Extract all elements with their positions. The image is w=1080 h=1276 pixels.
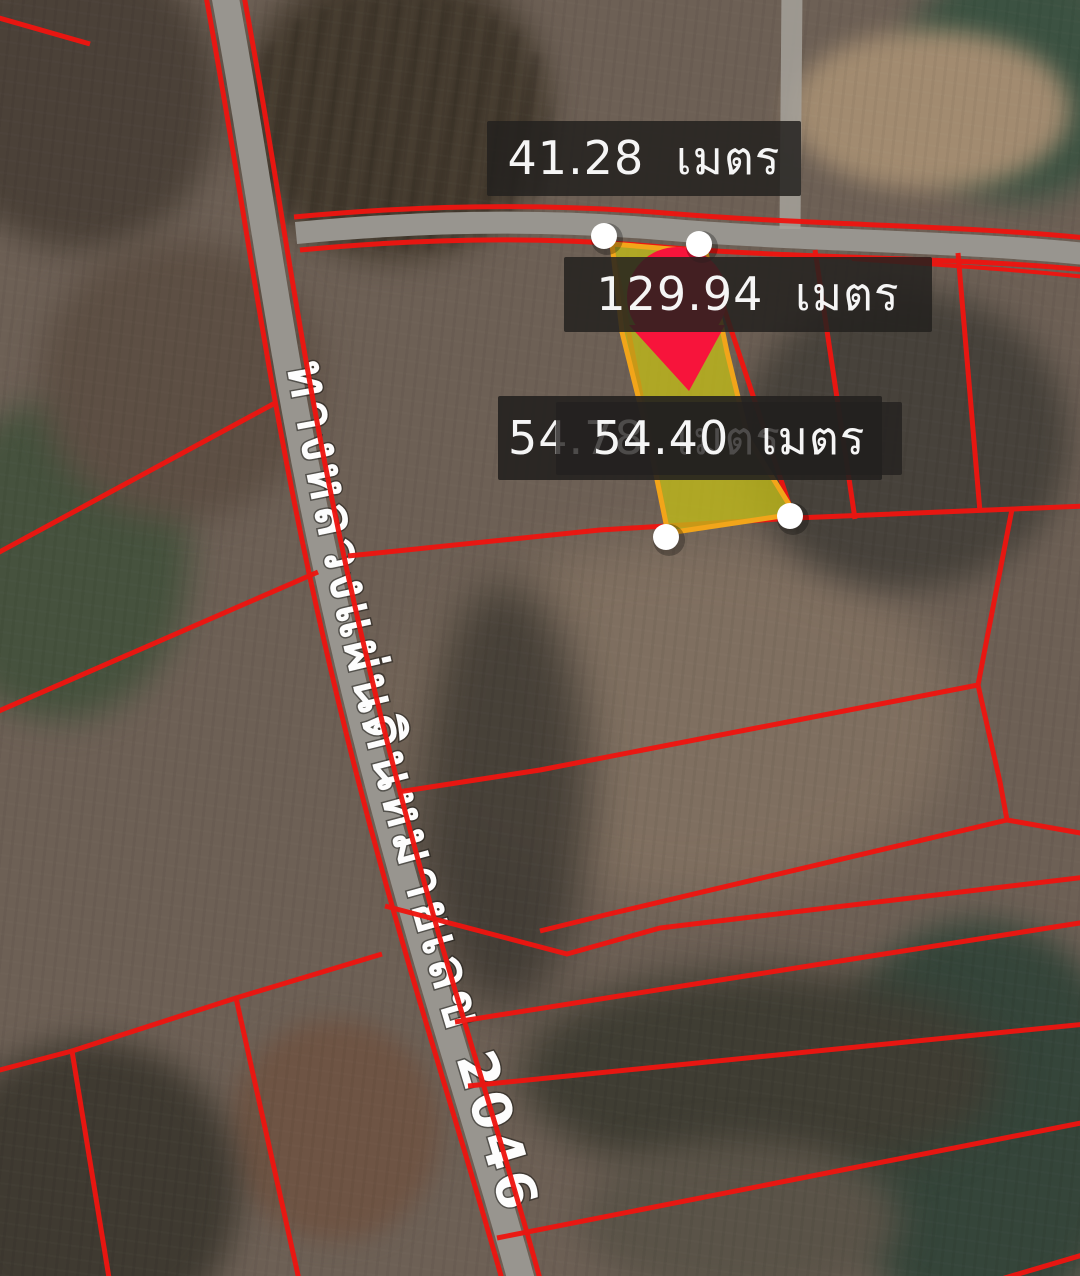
parcel-boundary-line (497, 1122, 1080, 1238)
parcel-boundary-line (455, 922, 1080, 1022)
measurement-label-54-40: 54.40 เมตร (556, 402, 902, 475)
parcel-boundary-line (1007, 820, 1080, 834)
measurement-endpoint-dot[interactable] (686, 231, 712, 257)
parcel-boundary-line (0, 402, 277, 556)
measurement-endpoint-dot[interactable] (653, 524, 679, 550)
measurement-endpoint-dot[interactable] (591, 223, 617, 249)
parcel-boundary-line (72, 998, 300, 1276)
parcel-boundary-line (385, 877, 1080, 954)
parcel-boundary-line (0, 16, 90, 44)
parcel-boundary-line (978, 685, 1007, 820)
measurement-endpoint-dot[interactable] (777, 503, 803, 529)
parcel-boundary-line (398, 685, 978, 792)
parcel-boundary-line (978, 509, 1012, 685)
map-viewport[interactable]: ทางหลวงแผ่นดินหมายเลข 2046 (0, 0, 1080, 1276)
parcel-boundary-line (0, 1051, 110, 1276)
parcel-boundary-line (0, 572, 318, 714)
parcel-boundary-line (468, 1024, 1080, 1086)
measurement-label-41-28: 41.28 เมตร (487, 121, 801, 196)
parcel-boundary-line (236, 954, 382, 998)
parcel-boundary-line (958, 253, 980, 512)
measurement-label-129-94: 129.94 เมตร (564, 257, 932, 332)
parcel-boundary-line (998, 1254, 1080, 1276)
